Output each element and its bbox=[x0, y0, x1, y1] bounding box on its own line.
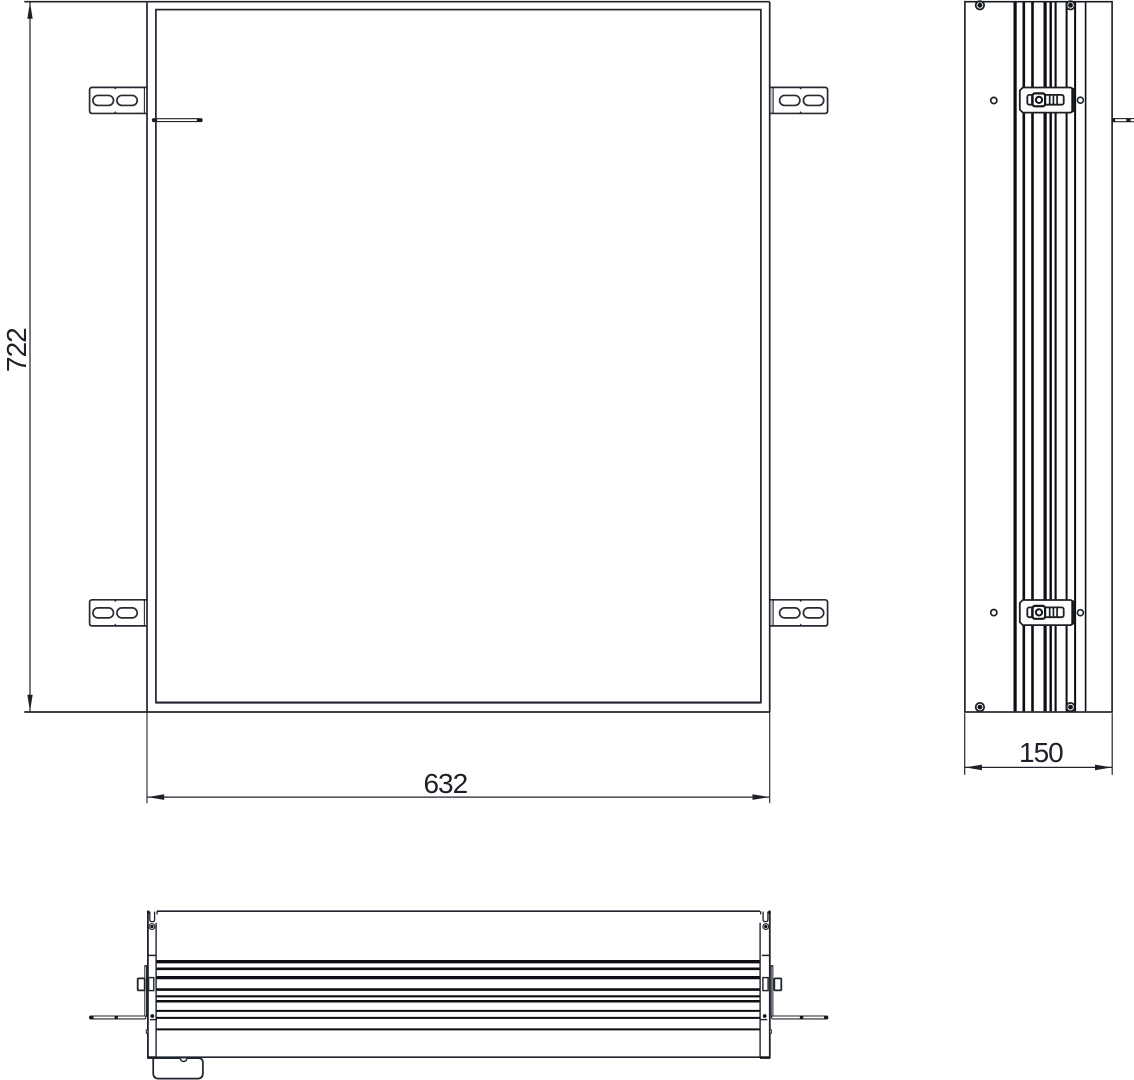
svg-text:722: 722 bbox=[1, 328, 32, 372]
svg-text:632: 632 bbox=[423, 768, 467, 799]
svg-text:150: 150 bbox=[1019, 737, 1063, 768]
